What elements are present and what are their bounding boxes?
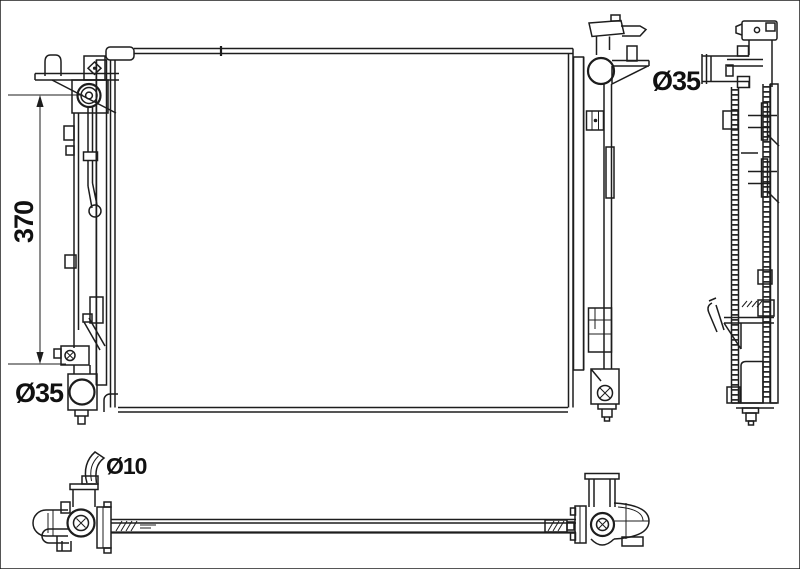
bottom-inlet-fitting bbox=[571, 474, 650, 547]
drain-cock-assembly bbox=[54, 314, 105, 365]
label-height-370: 370 bbox=[9, 201, 39, 243]
core-fins-right bbox=[574, 57, 584, 370]
tank-body-right bbox=[587, 84, 615, 369]
crossmember-bar bbox=[111, 520, 576, 533]
right-tank bbox=[587, 15, 650, 421]
side-view bbox=[702, 21, 779, 425]
radiator-core bbox=[96, 46, 584, 412]
front-view bbox=[35, 15, 649, 424]
overflow-tube bbox=[84, 107, 102, 217]
side-core-edge bbox=[732, 84, 779, 403]
drain-tube bbox=[85, 452, 104, 483]
dimension-height: 370 bbox=[8, 95, 83, 364]
bottom-right-bracket bbox=[591, 369, 619, 421]
side-inlet-pipe bbox=[702, 40, 772, 88]
outlet-port bbox=[68, 365, 97, 424]
drawing-canvas: N R F bbox=[0, 0, 800, 569]
radiator-technical-drawing: N R F bbox=[0, 0, 800, 569]
inlet-bracket bbox=[589, 15, 649, 84]
inlet-port bbox=[588, 58, 614, 84]
dimension-arrow-up bbox=[36, 95, 43, 107]
label-inlet-diameter: Ø35 bbox=[652, 66, 701, 96]
core-fins-left bbox=[97, 60, 107, 385]
side-fins-edge bbox=[771, 84, 779, 403]
label-drain-diameter: Ø10 bbox=[106, 453, 147, 479]
side-top-bracket bbox=[736, 21, 777, 40]
side-outlet-pin bbox=[732, 403, 778, 425]
drain-valve bbox=[33, 452, 111, 553]
dimension-arrow-down bbox=[36, 352, 43, 364]
filler-neck bbox=[72, 80, 108, 113]
label-outlet-diameter: Ø35 bbox=[15, 378, 64, 408]
